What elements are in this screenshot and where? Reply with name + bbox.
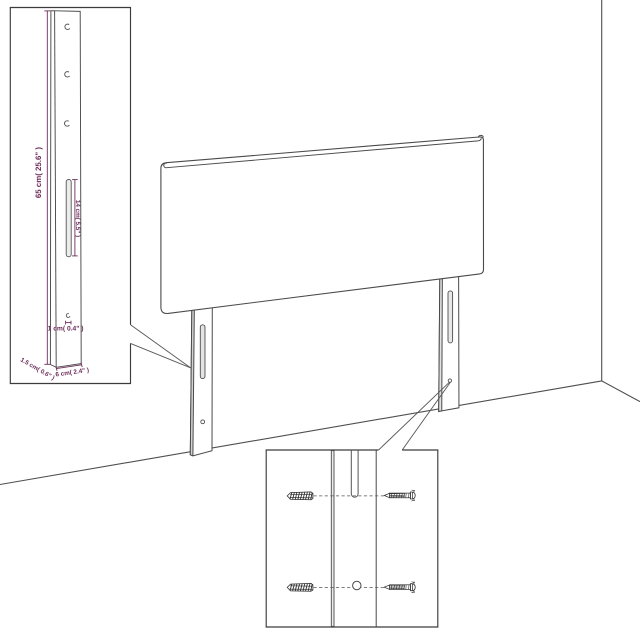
svg-text:14 cm( 5.5" ): 14 cm( 5.5" ) (74, 200, 81, 237)
svg-text:65 cm( 25.6" ): 65 cm( 25.6" ) (34, 147, 43, 198)
svg-text:1 cm( 0.4" ): 1 cm( 0.4" ) (48, 325, 84, 332)
